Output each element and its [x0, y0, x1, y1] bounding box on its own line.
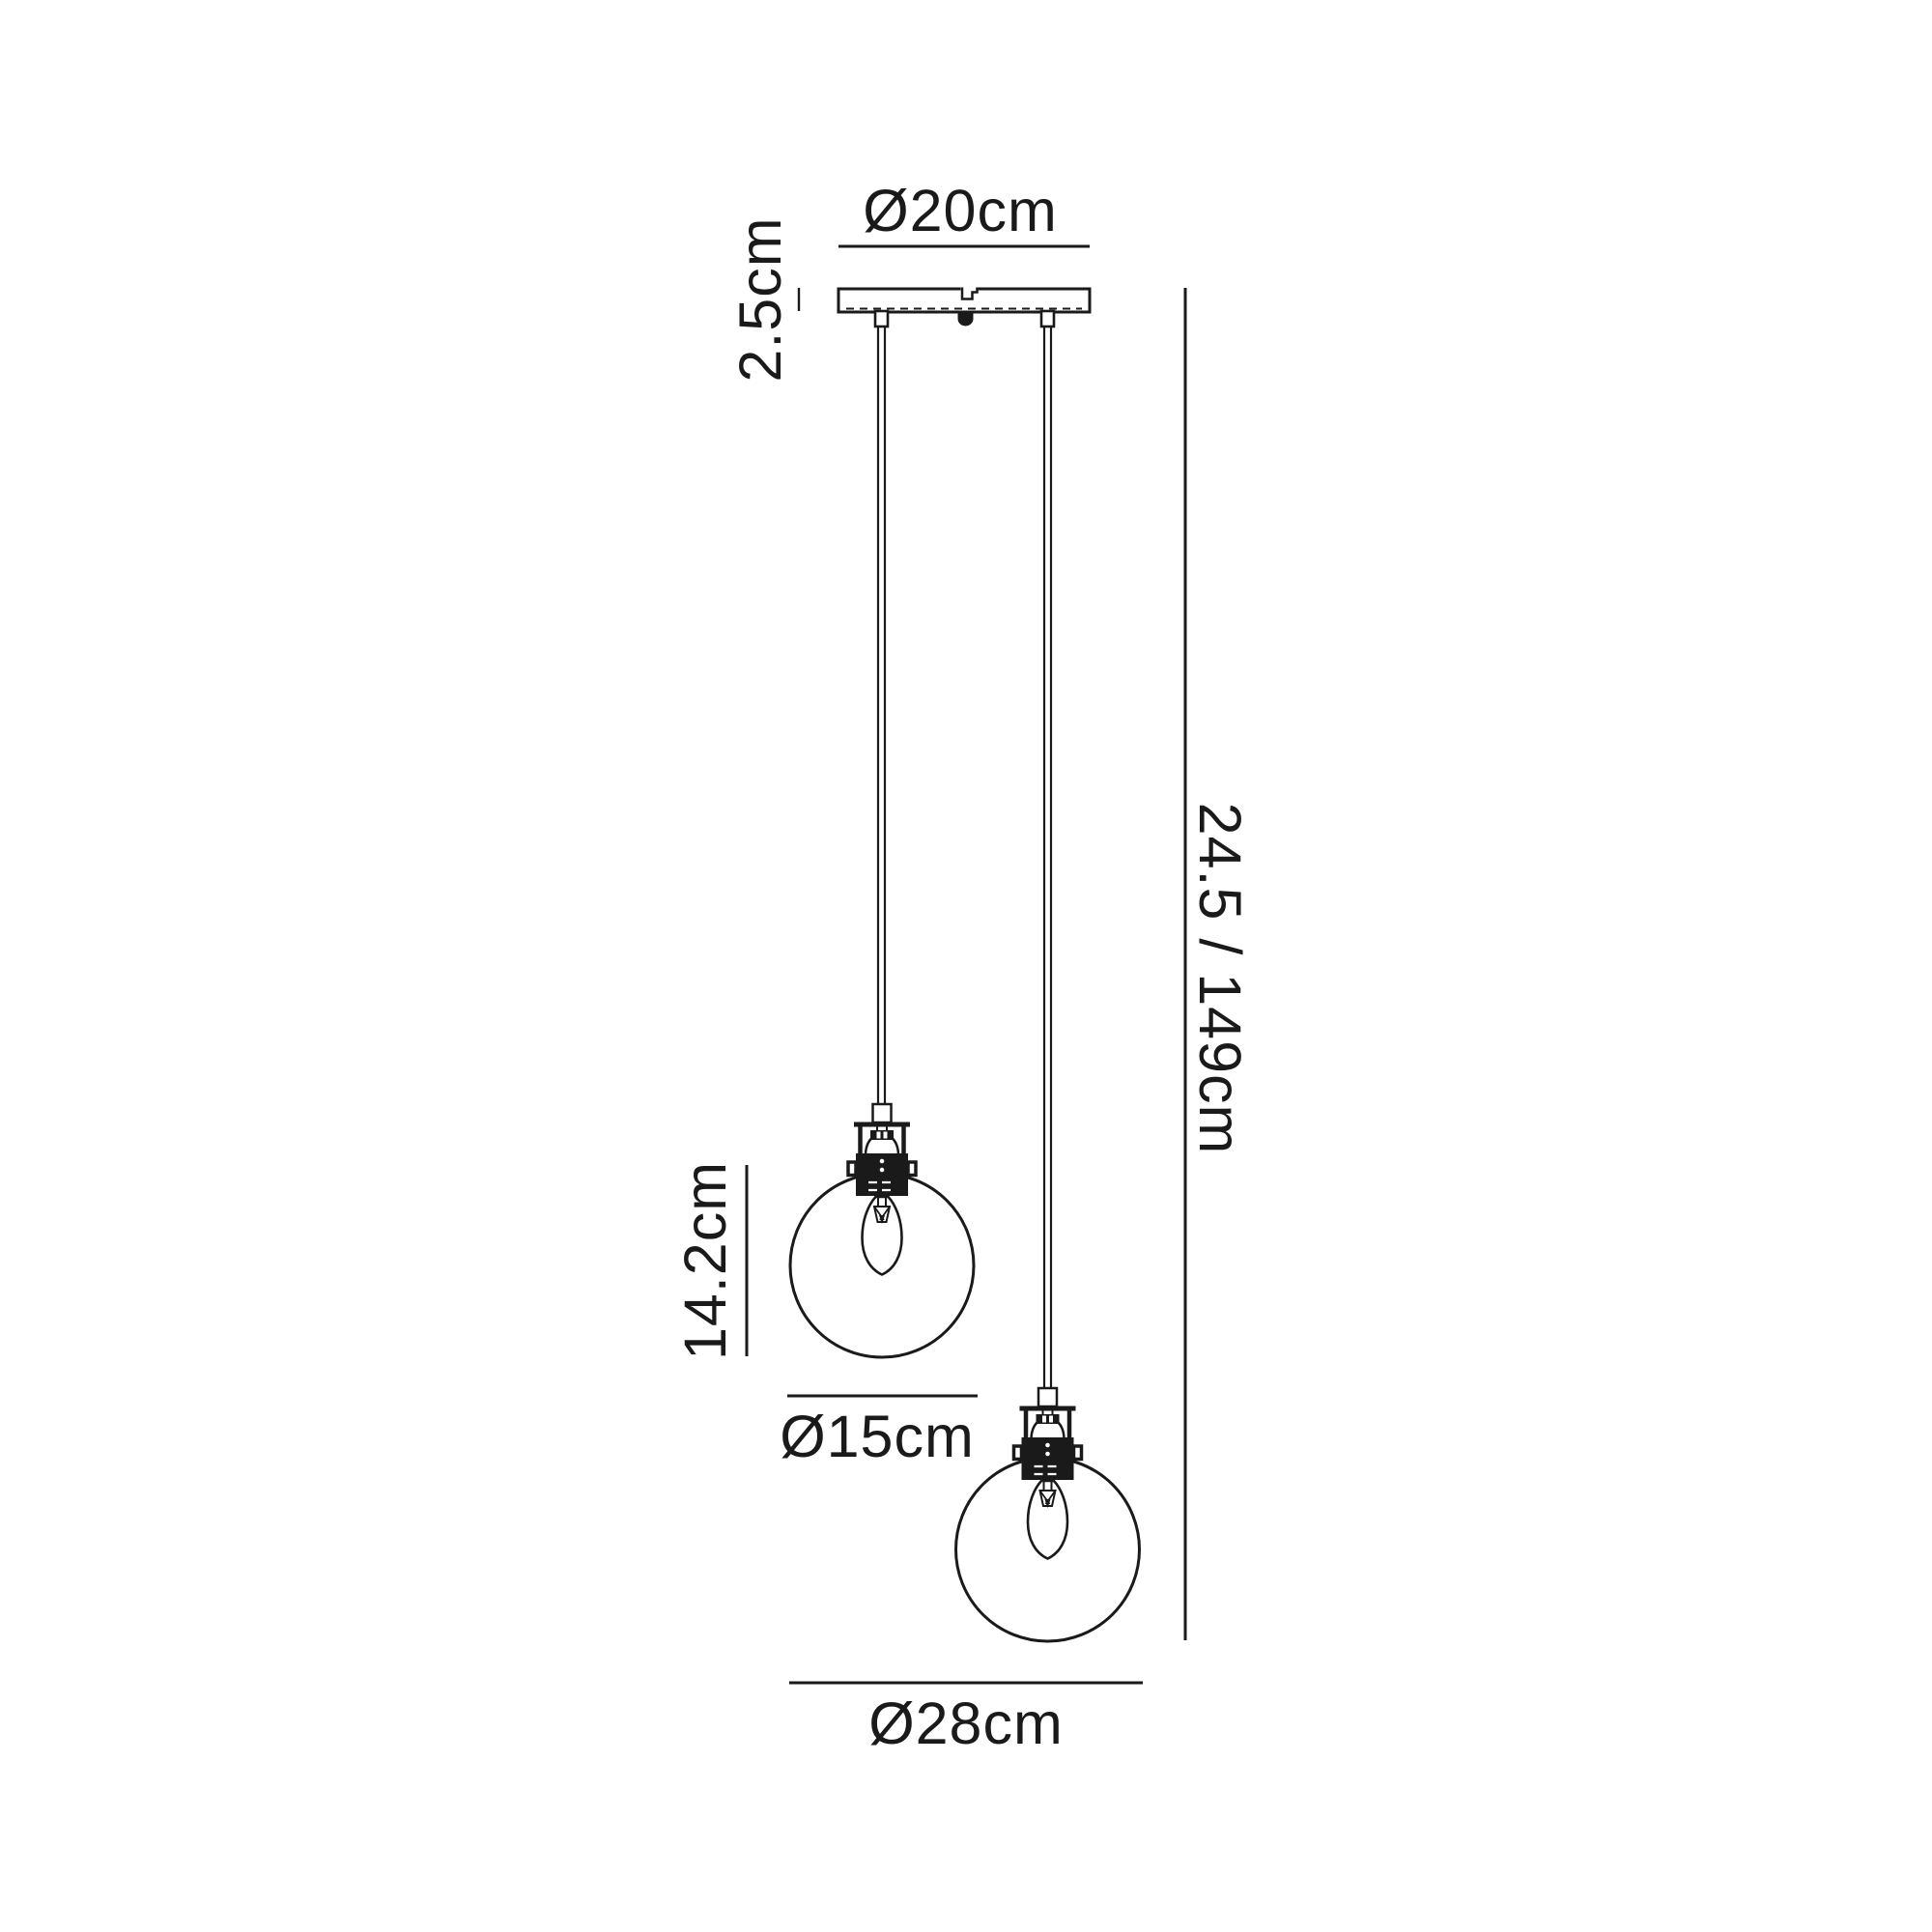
cord-connector-right: [1041, 311, 1054, 327]
label-overall-drop: 24.5 / 149cm: [1187, 803, 1253, 1155]
diagram-svg: Ø20cm 2.5cm 14.2cm Ø15cm 24.5 / 149cm Ø2…: [0, 0, 1932, 1932]
cord-connector-left: [875, 311, 888, 327]
label-canopy-height: 2.5cm: [727, 216, 793, 382]
center-screw: [958, 313, 974, 327]
label-shade-diameter: Ø15cm: [780, 1404, 975, 1469]
ceiling-plate-group: [838, 286, 1090, 327]
label-shade-height: 14.2cm: [672, 1161, 738, 1360]
pendant-cord-right: [1044, 327, 1051, 1389]
label-canopy-diameter: Ø20cm: [863, 178, 1058, 243]
pendant-left: [790, 1104, 974, 1357]
pendant-cord-left: [878, 327, 885, 1105]
label-overall-spread: Ø28cm: [868, 1690, 1064, 1756]
pendant-right: [956, 1388, 1140, 1641]
pendant-light-dimension-diagram: Ø20cm 2.5cm 14.2cm Ø15cm 24.5 / 149cm Ø2…: [0, 0, 1932, 1932]
